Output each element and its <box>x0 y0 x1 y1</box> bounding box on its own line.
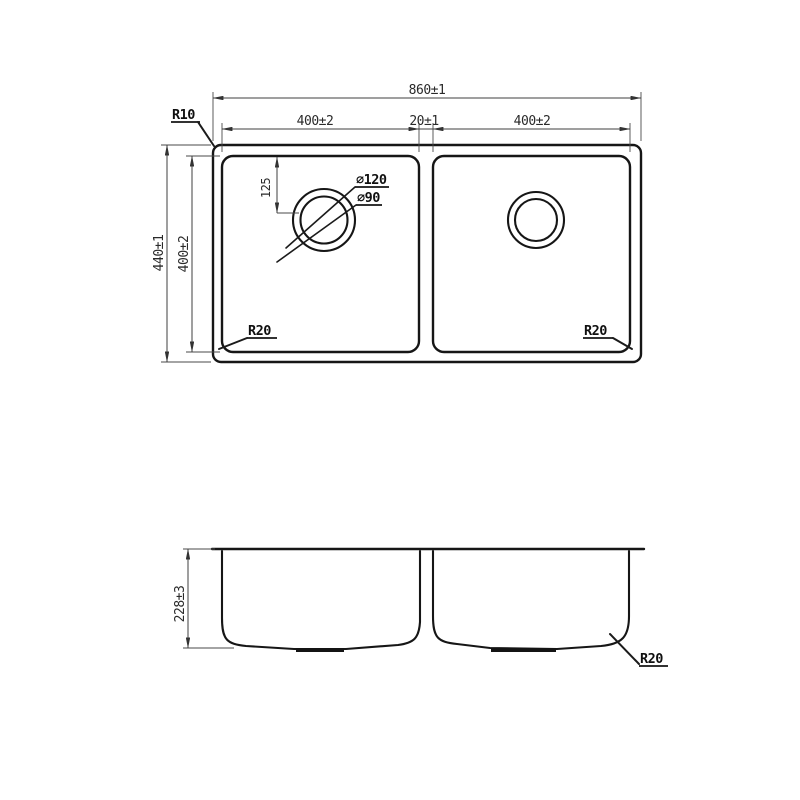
callout-right-bowl-radius: R20 <box>583 323 632 349</box>
right-drain-outer-circle <box>508 192 564 248</box>
dim-label-section-depth: 228±3 <box>173 586 188 623</box>
callout-label-r20-right: R20 <box>584 323 607 339</box>
dim-section-depth: 228±3 <box>173 549 234 648</box>
left-drain-outer-circle <box>293 189 355 251</box>
dim-label-drain-offset: 125 <box>259 178 273 198</box>
callout-label-r10: R10 <box>172 107 195 123</box>
callout-label-drain-outer: ∅120 <box>356 172 387 188</box>
dim-label-overall-width: 860±1 <box>409 83 446 98</box>
dim-label-overall-depth: 440±1 <box>152 235 167 272</box>
dim-drain-offset: 125 <box>259 157 299 213</box>
callout-label-r20-section: R20 <box>640 651 663 667</box>
callout-label-r20-left: R20 <box>248 323 271 339</box>
callout-rim-radius: R10 <box>171 107 214 146</box>
dim-bowl-widths: 400±2 20±1 400±2 <box>222 114 630 152</box>
drawing-canvas: 860±1 400±2 20±1 400±2 440±1 40 <box>0 0 800 800</box>
dim-label-right-bowl-width: 400±2 <box>514 114 551 129</box>
top-view: 860±1 400±2 20±1 400±2 440±1 40 <box>152 83 641 362</box>
callout-bottom-radius: R20 <box>610 634 668 667</box>
left-bowl-profile <box>222 551 420 649</box>
right-drain-inner-circle <box>515 199 557 241</box>
dim-overall-width: 860±1 <box>213 83 641 141</box>
leader-line <box>610 634 639 664</box>
callout-drain-outer: ∅120 <box>286 172 389 248</box>
dim-label-bowl-depth: 400±2 <box>177 236 192 273</box>
callout-label-drain-inner: ∅90 <box>357 190 380 206</box>
dim-label-divider-width: 20±1 <box>409 114 438 129</box>
callout-left-bowl-radius: R20 <box>219 323 277 349</box>
left-drain-inner-circle <box>301 197 348 244</box>
section-view: 228±3 R20 <box>173 549 668 667</box>
dim-label-left-bowl-width: 400±2 <box>297 114 334 129</box>
leader-line <box>198 122 214 146</box>
right-bowl-profile <box>433 551 629 649</box>
sink-technical-drawing: 860±1 400±2 20±1 400±2 440±1 40 <box>0 0 800 800</box>
